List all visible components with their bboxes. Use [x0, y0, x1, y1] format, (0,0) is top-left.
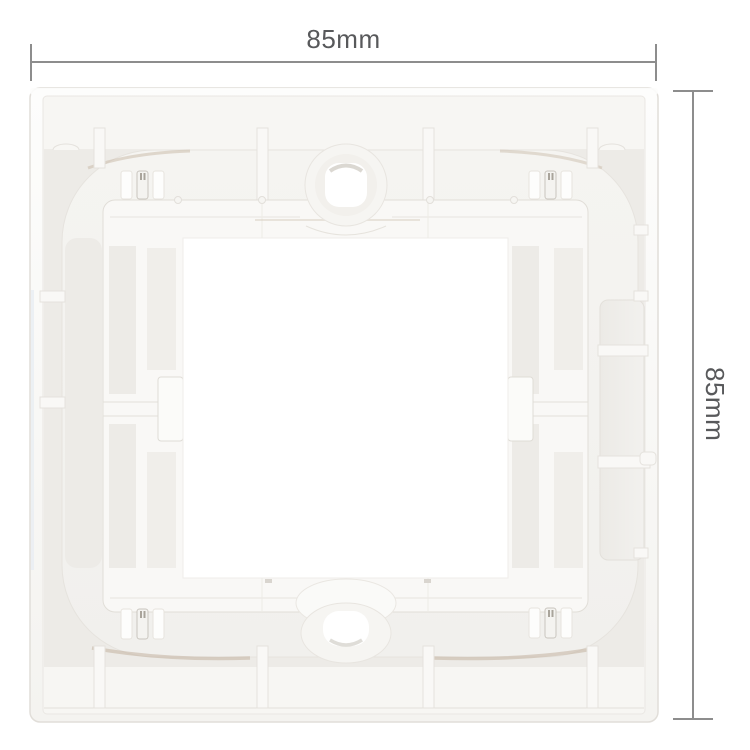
center-opening: [183, 238, 508, 578]
side-tab-right: [640, 452, 656, 465]
clip-slots-top-right: [529, 171, 572, 199]
product-photo: [0, 0, 750, 750]
clip-tab-left: [158, 377, 183, 441]
ring-right-recess: [600, 300, 644, 560]
screw-boss-bottom: [296, 579, 396, 663]
product-dimension-image: 85mm 85mm: [0, 0, 750, 750]
top-edge-highlight: [30, 88, 658, 95]
clip-tab-right: [508, 377, 533, 441]
left-edge-tint: [31, 290, 34, 570]
clip-slots-bottom-right: [529, 608, 572, 638]
clip-slots-top-left: [121, 171, 164, 199]
ring-left-recess: [65, 238, 102, 568]
clip-slots-bottom-left: [121, 609, 164, 639]
